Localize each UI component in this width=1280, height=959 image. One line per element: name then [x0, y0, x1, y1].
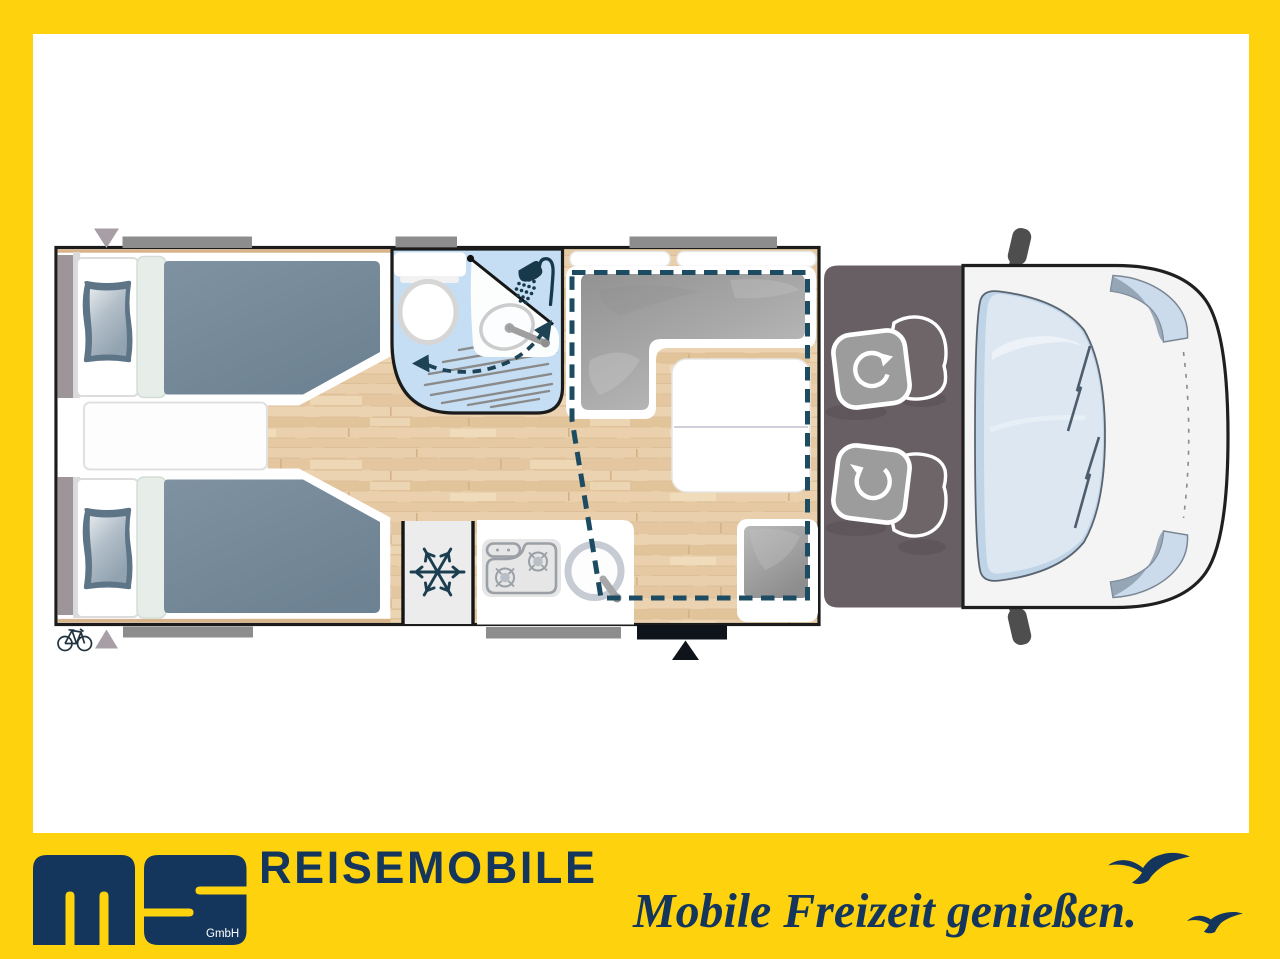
svg-text:Mobile Freizeit genießen.: Mobile Freizeit genießen. [632, 883, 1137, 938]
svg-text:GmbH: GmbH [206, 928, 239, 940]
svg-text:REISEMOBILE: REISEMOBILE [259, 842, 598, 893]
